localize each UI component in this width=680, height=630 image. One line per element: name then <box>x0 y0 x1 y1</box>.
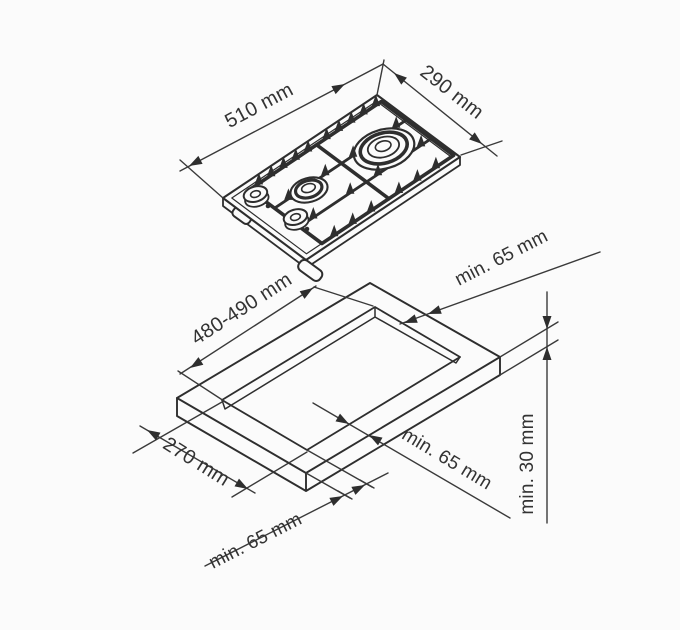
arrowhead <box>331 80 347 94</box>
igniter-dot-2 <box>305 227 310 232</box>
igniter-dot-1 <box>266 204 271 209</box>
hob-drawing <box>223 95 460 283</box>
cutout-outline <box>222 307 460 450</box>
front-clearance-label: min. 65 mm <box>206 509 306 574</box>
extension-line <box>180 160 223 198</box>
extension-line <box>314 287 373 306</box>
side-clearance-label: min. 65 mm <box>398 424 496 494</box>
diagram-canvas: 510 mm 290 mm <box>0 0 680 630</box>
hob-depth-label: 290 mm <box>416 61 488 124</box>
hob-foot-front <box>296 258 324 283</box>
worktop-dimensions <box>133 252 600 566</box>
installation-diagram: 510 mm 290 mm <box>0 0 680 630</box>
extension-line <box>232 452 307 497</box>
hob-width-label: 510 mm <box>221 79 297 133</box>
arrowhead <box>300 284 316 299</box>
extension-line <box>500 322 558 357</box>
cutout-inner-walls <box>222 307 460 409</box>
arrowhead <box>188 357 204 372</box>
extension-line <box>178 371 224 401</box>
rear-clearance-label: min. 65 mm <box>452 226 552 291</box>
thickness-label: min. 30 mm <box>517 413 538 514</box>
arrowhead <box>335 414 351 428</box>
arrowhead <box>367 431 383 445</box>
